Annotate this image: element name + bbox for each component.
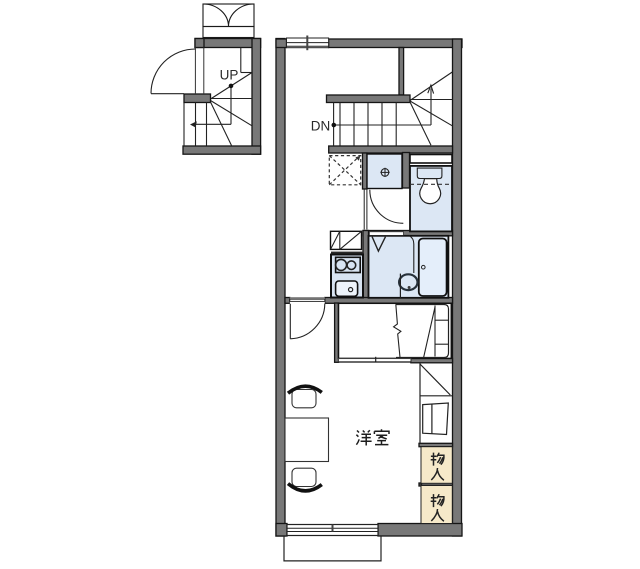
svg-text:DN: DN: [311, 118, 331, 133]
svg-text:UP: UP: [220, 68, 239, 83]
